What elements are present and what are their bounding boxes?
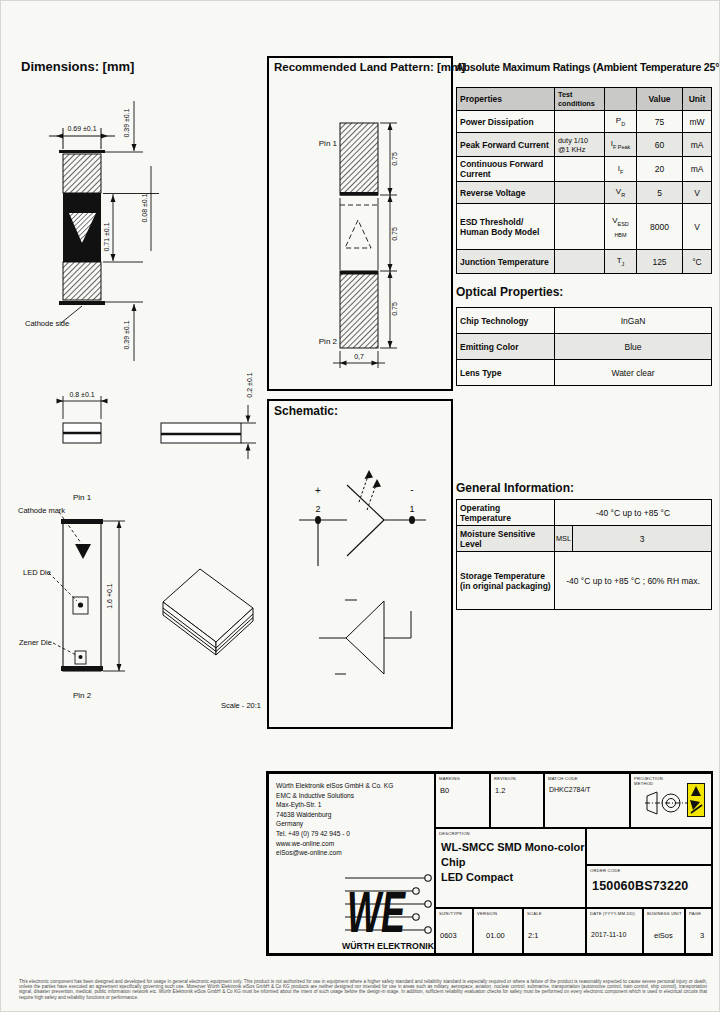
company-line: Max-Eyth-Str. 1 bbox=[276, 800, 434, 810]
optical-title: Optical Properties: bbox=[456, 285, 563, 299]
description-line2: LED Compact bbox=[441, 870, 585, 885]
company-info: Würth Elektronik eiSos GmbH & Co. KG EMC… bbox=[268, 773, 435, 954]
dim-thickness: 0.2 ±0.1 bbox=[246, 372, 253, 397]
pin1-label: Pin 1 bbox=[73, 493, 92, 502]
pin2-label: Pin 2 bbox=[73, 691, 92, 700]
land-dim-width: 0,7 bbox=[354, 353, 364, 360]
land-pin1-label: Pin 1 bbox=[319, 139, 338, 148]
company-line: EMC & Inductive Solutions bbox=[276, 791, 434, 801]
company-line: eiSos@we-online.com bbox=[276, 848, 434, 858]
description-line1: WL-SMCC SMD Mono-color Chip bbox=[441, 840, 585, 870]
empty-cell bbox=[586, 828, 713, 865]
land-dim-2: 0.75 bbox=[391, 227, 398, 241]
zener-die-label: Zener Die bbox=[19, 638, 52, 647]
col-test-conditions: Test conditions bbox=[555, 88, 605, 111]
dim-gap: 0.08 ±0.1 bbox=[141, 193, 148, 222]
scale-cell: SCALE 2:1 bbox=[523, 908, 586, 954]
we-logo-letters: WE bbox=[347, 879, 406, 944]
esd-warning-icon bbox=[687, 783, 705, 817]
description-cell: DESCRIPTION WL-SMCC SMD Mono-color Chip … bbox=[435, 828, 586, 908]
datasheet-page: Dimensions: [mm] 0.69 ±0.1 bbox=[0, 0, 720, 1012]
table-row: Junction Temperature TJ 125 °C bbox=[457, 250, 712, 274]
business-unit-cell: BUSINESS UNIT eiSos bbox=[643, 908, 685, 954]
schematic-drawing: + 2 - 1 bbox=[269, 401, 455, 731]
land-dim-3: 0.75 bbox=[391, 302, 398, 316]
table-row: Operating Temperature -40 °C up to +85 °… bbox=[457, 500, 712, 526]
led-die-label: LED Die bbox=[23, 568, 51, 577]
legal-disclaimer: This electronic component has been desig… bbox=[19, 979, 707, 1000]
match-code-cell: MATCH CODE DHKC2784/T bbox=[544, 773, 630, 828]
table-row: Chip Technology InGaN bbox=[457, 308, 712, 334]
ratings-title: Absolute Maximum Ratings (Ambient Temper… bbox=[456, 61, 720, 73]
land-pattern-drawing: Pin 1 Pin 2 0.75 0.75 0.75 bbox=[269, 58, 455, 393]
table-row: Emitting Color Blue bbox=[457, 334, 712, 360]
dim-pad-top: 0.39 ±0.1 bbox=[123, 108, 130, 137]
order-code-cell: ORDER CODE 150060BS73220 bbox=[586, 865, 713, 908]
general-info-table: Operating Temperature -40 °C up to +85 °… bbox=[456, 499, 712, 610]
minus-label: - bbox=[410, 484, 413, 495]
pin2-number: 2 bbox=[315, 504, 320, 514]
front-view-drawing: 0.69 ±0.1 0.39 ±0.1 0.08 ±0.1 0.71 ±0.1 … bbox=[1, 76, 261, 376]
schematic-box: Schematic: + 2 - 1 bbox=[267, 399, 453, 729]
wuerth-logo: WE WÜRTH ELEKTRONIK bbox=[341, 870, 435, 954]
general-info-title: General Information: bbox=[456, 481, 574, 495]
revision-cell: REVISION 1.2 bbox=[490, 773, 544, 828]
land-pin2-label: Pin 2 bbox=[319, 337, 338, 346]
table-row: ESD Threshold/ Human Body Model VESD HBM… bbox=[457, 204, 712, 250]
size-type-cell: SIZE/TYPE 0603 bbox=[435, 908, 473, 954]
optical-table: Chip Technology InGaN Emitting Color Blu… bbox=[456, 307, 712, 386]
table-row: Lens Type Water clear bbox=[457, 360, 712, 386]
cathode-mark-label: Cathode mark bbox=[18, 506, 65, 515]
col-symbol bbox=[605, 88, 637, 111]
max-ratings-table: Properties Test conditions Value Unit Po… bbox=[456, 87, 712, 274]
marking-cell: MARKING B0 bbox=[435, 773, 490, 828]
side-view-drawing: 0.8 ±0.1 0.2 ±0.1 bbox=[1, 361, 261, 471]
company-line: Tel. +49 (0) 79 42 945 - 0 bbox=[276, 829, 434, 839]
table-header-row: Properties Test conditions Value Unit bbox=[457, 88, 712, 111]
company-line: www.we-online.com bbox=[276, 839, 434, 849]
plus-label: + bbox=[315, 485, 321, 496]
projection-method-cell: PROJECTION METHOD bbox=[630, 773, 713, 828]
table-row: Peak Forward Current duty 1/10 @1 KHz IF… bbox=[457, 133, 712, 157]
cathode-side-label: Cathode side bbox=[25, 319, 69, 328]
die-view-drawing: Pin 1 Cathode mark LED Die Zener Die 1.6… bbox=[1, 481, 271, 721]
col-properties: Properties bbox=[457, 88, 555, 111]
company-line: 74638 Waldenburg bbox=[276, 810, 434, 820]
version-cell: VERSION 01.00 bbox=[473, 908, 523, 954]
pin1-number: 1 bbox=[409, 504, 414, 514]
table-row: Power Dissipation PD 75 mW bbox=[457, 111, 712, 133]
wuerth-elektronik-wordmark: WÜRTH ELEKTRONIK bbox=[342, 940, 434, 951]
dim-length: 1.6 +0.1 bbox=[106, 583, 113, 609]
date-cell: DATE (YYYY-MM-DD) 2017-11-10 bbox=[586, 908, 643, 954]
land-dim-1: 0.75 bbox=[391, 152, 398, 166]
table-row: Reverse Voltage VR 5 V bbox=[457, 182, 712, 204]
land-pattern-box: Recommended Land Pattern: [mm] Pin 1 Pin… bbox=[267, 56, 453, 391]
projection-method-icon bbox=[645, 790, 687, 818]
col-value: Value bbox=[637, 88, 683, 111]
order-code: 150060BS73220 bbox=[592, 879, 688, 893]
page-cell: PAGE 3 bbox=[685, 908, 713, 954]
table-row: Continuous Forward Current IF 20 mA bbox=[457, 157, 712, 182]
company-line: Germany bbox=[276, 819, 434, 829]
table-row: Storage Temperature (in original packagi… bbox=[457, 552, 712, 610]
product-description: WL-SMCC SMD Mono-color Chip LED Compact bbox=[441, 840, 585, 885]
title-block: Würth Elektronik eiSos GmbH & Co. KG EMC… bbox=[266, 771, 713, 956]
dim-pad-bottom: 0.39 ±0.1 bbox=[123, 320, 130, 349]
dim-body: 0.71 ±0.1 bbox=[103, 222, 110, 251]
col-unit: Unit bbox=[683, 88, 712, 111]
scale-note: Scale - 20:1 bbox=[221, 701, 261, 710]
dim-side-width: 0.8 ±0.1 bbox=[69, 391, 94, 398]
table-row: Moisture Sensitive Level MSL 3 bbox=[457, 526, 712, 552]
dimensions-title: Dimensions: [mm] bbox=[21, 59, 134, 74]
dim-width: 0.69 ±0.1 bbox=[67, 125, 96, 132]
company-line: Würth Elektronik eiSos GmbH & Co. KG bbox=[276, 781, 434, 791]
